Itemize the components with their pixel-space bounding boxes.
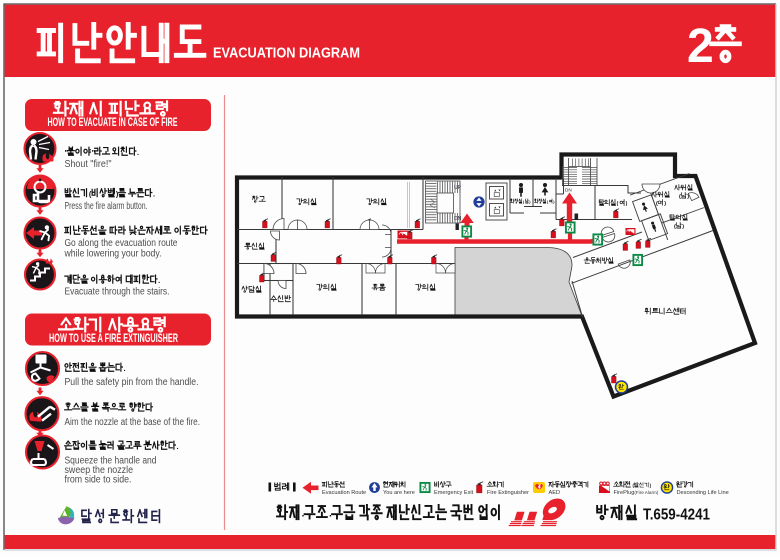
svg-text:.: . xyxy=(177,442,179,451)
svg-text:DN: DN xyxy=(454,216,462,222)
svg-text:): ) xyxy=(664,201,666,207)
svg-text:Aim the nozzle at the base of: Aim the nozzle at the base of the fire. xyxy=(65,417,201,428)
svg-text:": " xyxy=(65,148,69,157)
svg-text:T.659-4241: T.659-4241 xyxy=(643,507,710,524)
svg-text:Evacuation Route: Evacuation Route xyxy=(322,490,366,496)
svg-text:·: · xyxy=(302,511,305,522)
svg-text:.: . xyxy=(124,364,126,373)
svg-text:HOW TO USE A FIRE EXTINGUISHER: HOW TO USE A FIRE EXTINGUISHER xyxy=(49,333,178,345)
svg-text:Evacuate through the stairs.: Evacuate through the stairs. xyxy=(65,287,170,298)
svg-text:Press the fire alarm button.: Press the fire alarm button. xyxy=(65,201,148,212)
svg-text:from side to side.: from side to side. xyxy=(65,475,132,486)
svg-text:Emergency Exit: Emergency Exit xyxy=(434,490,474,496)
svg-text:Fire Extinguisher: Fire Extinguisher xyxy=(487,490,529,496)
svg-text:UP: UP xyxy=(454,185,462,191)
svg-text:Pull the safety pin from the h: Pull the safety pin from the handle. xyxy=(65,377,199,388)
svg-text:EVACUATION DIAGRAM: EVACUATION DIAGRAM xyxy=(213,45,360,62)
svg-text:2: 2 xyxy=(687,20,714,73)
svg-text:.: . xyxy=(137,148,139,157)
svg-text:You are here: You are here xyxy=(383,490,415,496)
svg-text:HOW TO EVACUATE IN CASE OF FIR: HOW TO EVACUATE IN CASE OF FIRE xyxy=(48,117,178,129)
svg-text:.: . xyxy=(153,190,155,199)
svg-text:DN: DN xyxy=(565,188,572,193)
svg-text:·: · xyxy=(329,511,332,522)
svg-text:(: ( xyxy=(656,201,658,207)
svg-text:while lowering your body.: while lowering your body. xyxy=(64,249,162,260)
svg-text:): ) xyxy=(682,224,684,230)
svg-text:AED: AED xyxy=(549,490,561,496)
svg-text:Go along the evacuation route: Go along the evacuation route xyxy=(65,238,178,249)
svg-text:): ) xyxy=(687,194,689,200)
svg-text:": " xyxy=(92,148,96,157)
svg-text:Shout "fire!": Shout "fire!" xyxy=(65,159,113,170)
svg-text:(: ( xyxy=(679,194,681,200)
svg-text:.: . xyxy=(158,276,160,285)
svg-text:(: ( xyxy=(674,224,676,230)
svg-text:Descending Life Line: Descending Life Line xyxy=(677,490,729,496)
